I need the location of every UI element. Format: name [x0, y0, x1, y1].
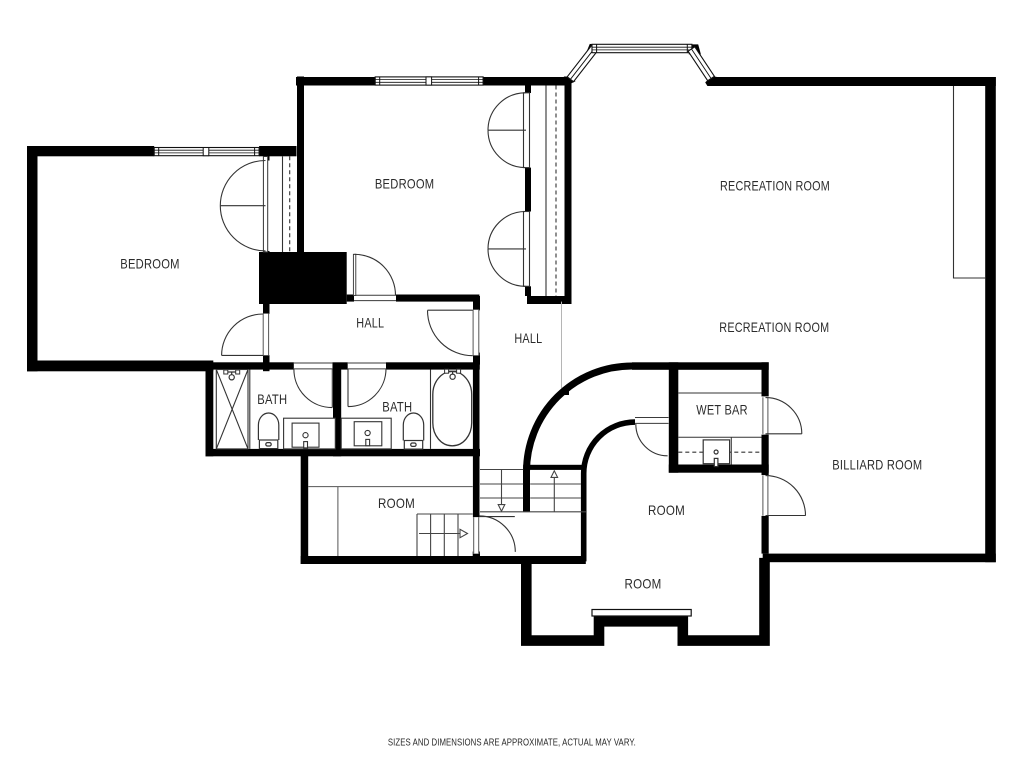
svg-text:BATH: BATH: [382, 399, 412, 415]
svg-text:SIZES AND DIMENSIONS ARE APPRO: SIZES AND DIMENSIONS ARE APPROXIMATE, AC…: [388, 737, 636, 749]
svg-text:BEDROOM: BEDROOM: [375, 176, 435, 192]
svg-text:BILLIARD ROOM: BILLIARD ROOM: [832, 457, 922, 473]
svg-text:ROOM: ROOM: [625, 576, 662, 592]
svg-text:WET BAR: WET BAR: [696, 402, 748, 418]
svg-text:BATH: BATH: [257, 391, 287, 407]
svg-text:HALL: HALL: [356, 315, 384, 331]
svg-text:HALL: HALL: [514, 330, 542, 346]
svg-text:RECREATION ROOM: RECREATION ROOM: [720, 178, 830, 194]
svg-text:BEDROOM: BEDROOM: [120, 256, 180, 272]
svg-text:RECREATION ROOM: RECREATION ROOM: [719, 319, 829, 335]
svg-text:ROOM: ROOM: [378, 495, 415, 511]
svg-text:ROOM: ROOM: [648, 502, 685, 518]
